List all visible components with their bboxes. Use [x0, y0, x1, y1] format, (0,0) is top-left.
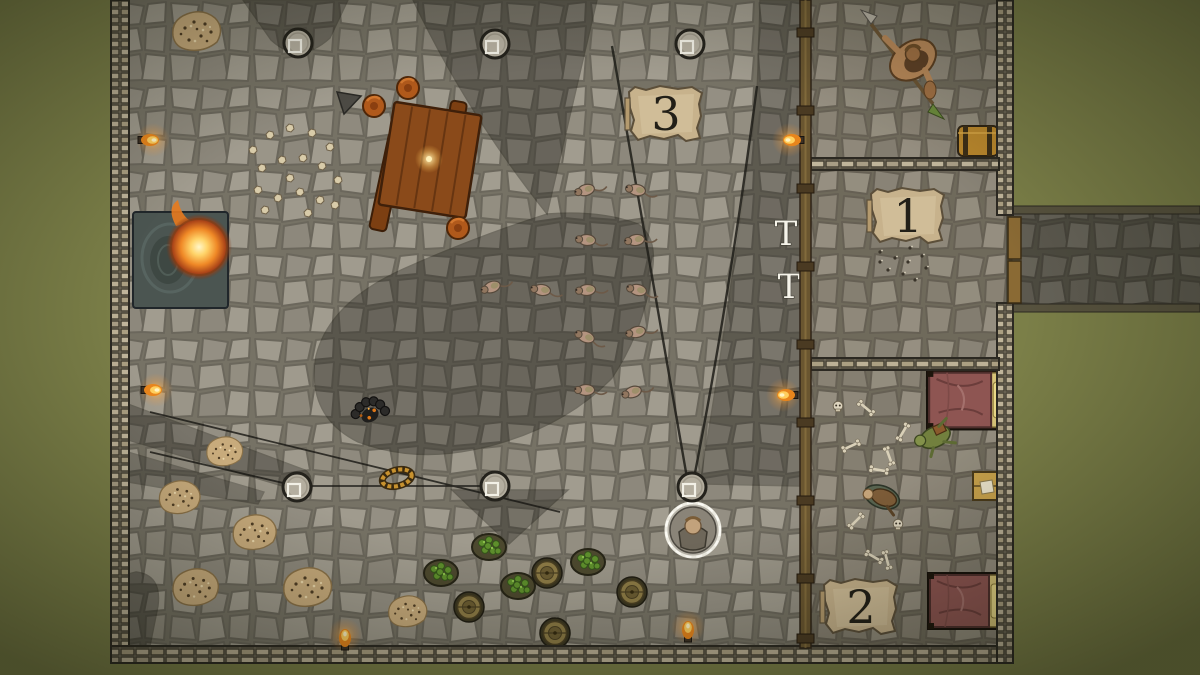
- stone-debris: [254, 186, 262, 194]
- rubble-pile: [173, 12, 221, 51]
- crate-with-papers: [973, 472, 1000, 500]
- rubble-pile: [173, 569, 218, 606]
- skull: [833, 401, 843, 411]
- stone-debris: [334, 176, 342, 184]
- cask-on-side: [958, 126, 998, 156]
- room-marker-2[interactable]: 2: [820, 579, 897, 634]
- side-rooms-floor: [806, 0, 1006, 652]
- stone-debris: [261, 206, 269, 214]
- rubble-pile: [389, 596, 427, 627]
- hop-sack: [472, 534, 506, 560]
- rubble-pile: [159, 481, 200, 514]
- room-marker-label: 3: [651, 87, 680, 141]
- stone-debris: [316, 196, 324, 204]
- barrel: [540, 618, 570, 648]
- torch-icon: [766, 378, 800, 412]
- stone-debris: [258, 164, 266, 172]
- east-corridor: [1004, 206, 1200, 312]
- bed: [928, 573, 1006, 629]
- pillar: [676, 30, 704, 58]
- room-marker-label: 2: [846, 580, 875, 634]
- stone-debris: [286, 174, 294, 182]
- pillar: [481, 472, 509, 500]
- torch-icon: [671, 610, 705, 644]
- stone-debris: [331, 201, 339, 209]
- barrel: [454, 592, 484, 622]
- hop-sack: [424, 560, 458, 586]
- wall-glyph-t1: T: [775, 214, 798, 254]
- rubble-pile: [207, 437, 243, 466]
- stone-debris: [278, 156, 286, 164]
- stool: [447, 217, 469, 239]
- stone-debris: [249, 146, 257, 154]
- room-marker-3[interactable]: 3: [625, 86, 702, 141]
- map-canvas[interactable]: 3 1 2 T T: [0, 0, 1200, 675]
- room-marker-1[interactable]: 1: [867, 188, 944, 243]
- room-divider-2: [811, 358, 999, 370]
- stone-debris: [266, 131, 274, 139]
- stone-debris: [308, 129, 316, 137]
- wall-left: [111, 0, 129, 663]
- hop-sack: [501, 573, 535, 599]
- stone-debris: [296, 188, 304, 196]
- wall-bottom: [111, 646, 1013, 663]
- skull: [893, 519, 903, 529]
- player-token[interactable]: [666, 503, 720, 557]
- stone-debris: [318, 162, 326, 170]
- inner-wood-wall: [797, 0, 814, 648]
- stool: [397, 77, 419, 99]
- fireball-token[interactable]: [133, 200, 232, 308]
- barrel: [532, 558, 562, 588]
- rubble-pile: [284, 568, 332, 607]
- torch-icon: [772, 123, 806, 157]
- stone-debris: [326, 143, 334, 151]
- hop-sack: [571, 549, 605, 575]
- pillar: [283, 473, 311, 501]
- stone-debris: [286, 124, 294, 132]
- candle-icon: [426, 156, 432, 162]
- stone-debris: [304, 209, 312, 217]
- pillar: [284, 29, 312, 57]
- stone-debris: [274, 194, 282, 202]
- pillar: [678, 473, 706, 501]
- torch-icon: [136, 123, 170, 157]
- stool: [363, 95, 385, 117]
- rubble-pile: [233, 515, 276, 550]
- torch-icon: [139, 373, 173, 407]
- room-marker-label: 1: [893, 189, 922, 243]
- battle-map: 3 1 2 T T: [0, 0, 1200, 675]
- wall-right-top: [997, 0, 1013, 215]
- wall-glyph-t2: T: [778, 267, 801, 307]
- barrel: [617, 577, 647, 607]
- torch-icon: [328, 618, 362, 652]
- stone-debris: [299, 154, 307, 162]
- room-divider-1: [811, 158, 999, 170]
- pillar: [481, 30, 509, 58]
